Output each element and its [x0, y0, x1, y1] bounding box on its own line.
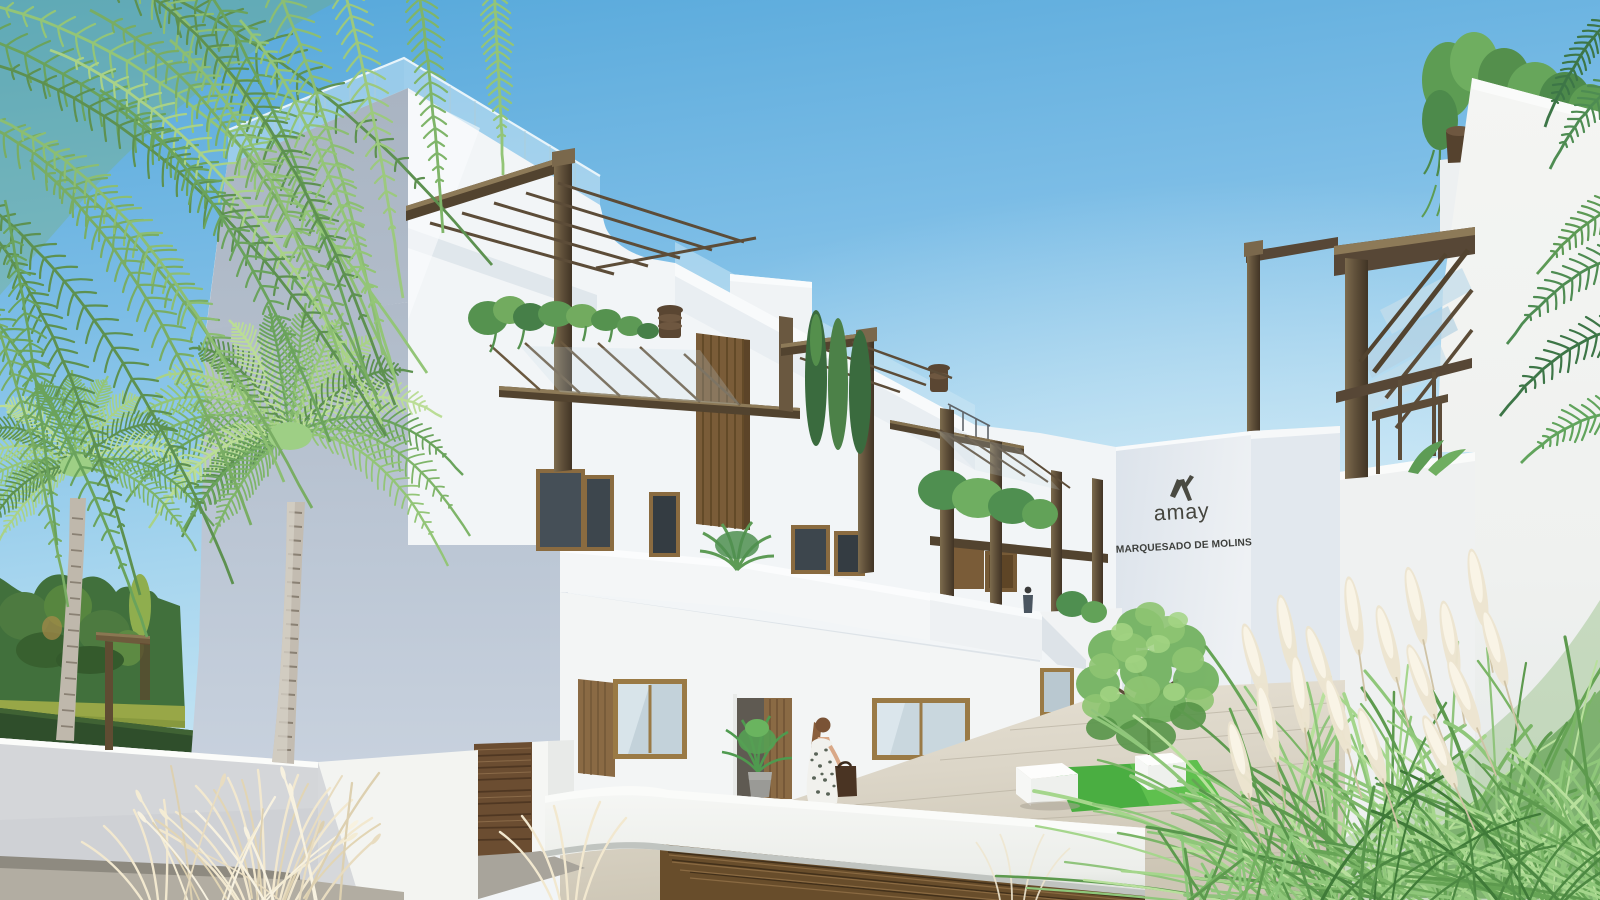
svg-text:amay: amay [1153, 499, 1210, 526]
